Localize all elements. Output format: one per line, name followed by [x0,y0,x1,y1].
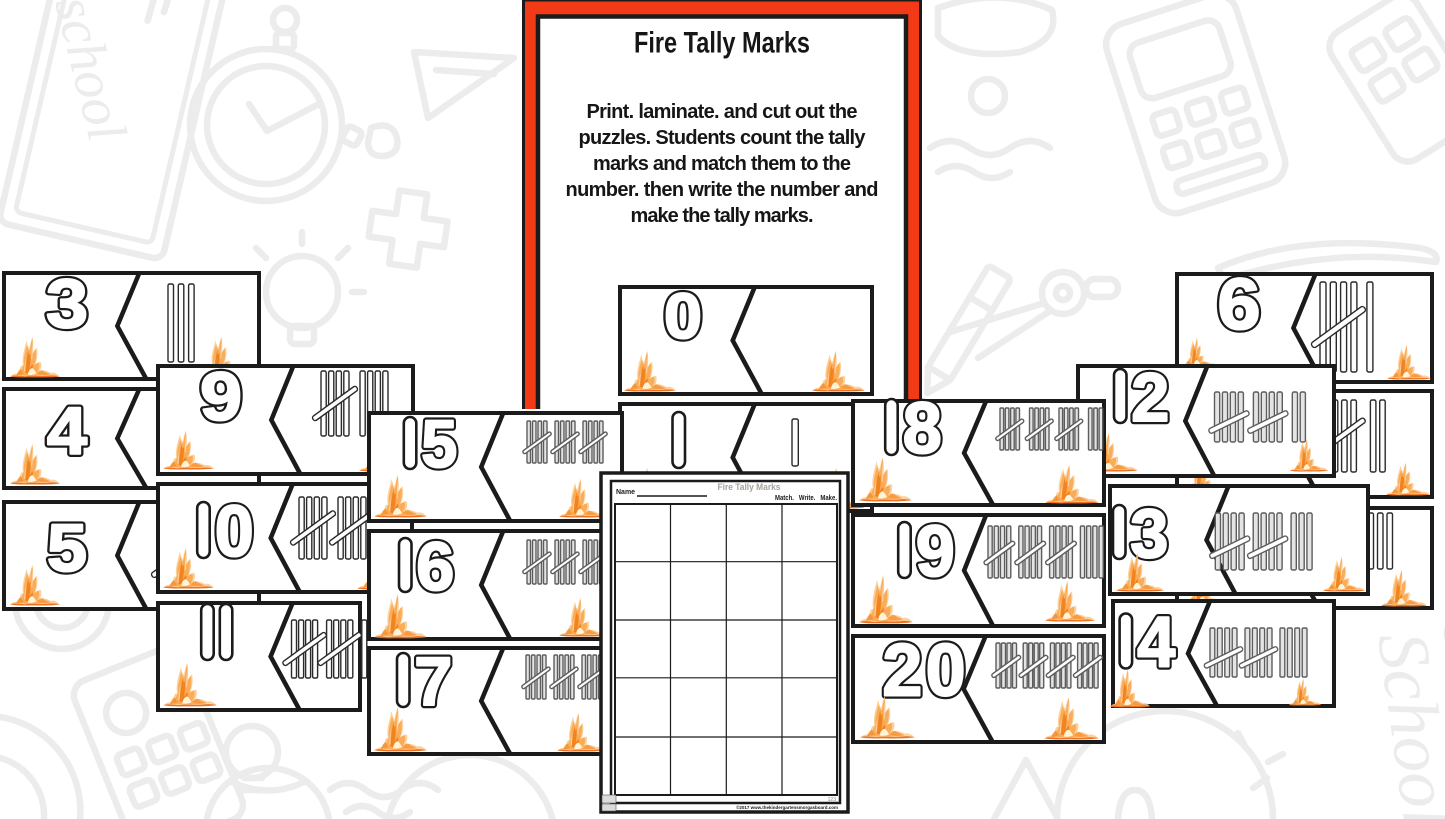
svg-text:Fire Tally Marks: Fire Tally Marks [634,27,810,60]
svg-text:5: 5 [421,407,457,482]
svg-text:8: 8 [903,389,942,469]
svg-text:Match. Write. Make.: Match. Write. Make. [775,495,837,502]
svg-text:number. then write the number: number. then write the number and [566,179,879,201]
svg-text:9: 9 [200,358,242,435]
svg-text:9: 9 [916,512,955,592]
svg-text:4: 4 [1137,604,1175,683]
svg-text:6: 6 [1218,265,1261,345]
svg-text:Name: Name [616,489,635,496]
svg-text:2: 2 [1131,359,1169,436]
svg-text:0: 0 [926,629,966,712]
svg-text:2: 2 [882,629,922,712]
svg-text:6: 6 [416,528,454,605]
svg-text:marks and match them to the: marks and match them to the [593,153,851,175]
svg-text:0: 0 [215,492,254,572]
svg-text:123: 123 [828,797,837,803]
svg-text:Fire Tally Marks: Fire Tally Marks [718,482,781,492]
svg-text:4: 4 [47,394,87,469]
svg-text:5: 5 [47,511,87,586]
svg-text:0: 0 [664,280,702,352]
svg-text:©2017 www.thekindergartensmor: ©2017 www.thekindergartensmorgasboard.co… [736,804,838,810]
svg-text:3: 3 [46,265,88,342]
svg-text:7: 7 [414,643,452,720]
svg-text:School: School [1362,627,1445,819]
svg-text:puzzles. Students count the t: puzzles. Students count the tally [579,127,867,149]
svg-text:make the tally marks.: make the tally marks. [631,205,814,227]
svg-text:Print. laminate. and cut out t: Print. laminate. and cut out the [587,101,858,123]
